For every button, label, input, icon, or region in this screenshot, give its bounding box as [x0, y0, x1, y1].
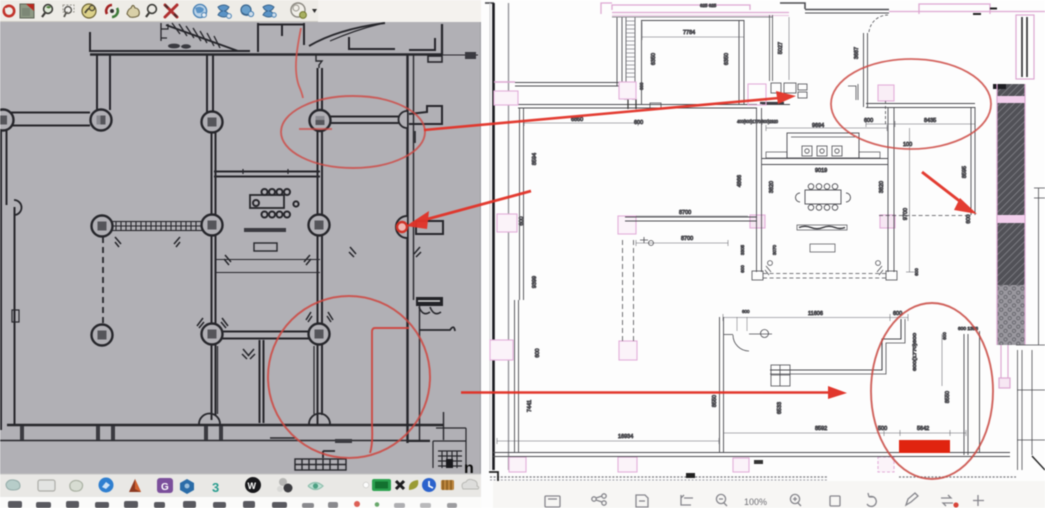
svg-text:8700: 8700 — [681, 236, 693, 242]
svg-text:8595: 8595 — [962, 166, 968, 178]
svg-text:600: 600 — [740, 265, 745, 273]
svg-text:8435: 8435 — [924, 118, 936, 124]
svg-text:600: 600 — [942, 332, 947, 340]
svg-text:3820: 3820 — [879, 181, 885, 193]
svg-text:5642: 5642 — [917, 426, 929, 432]
svg-text:625 625: 625 625 — [700, 3, 717, 8]
svg-text:9694: 9694 — [812, 123, 824, 129]
svg-text:9399: 9399 — [532, 276, 538, 288]
svg-text:11606: 11606 — [808, 311, 823, 317]
svg-text:3: 3 — [212, 480, 219, 495]
svg-text:8550: 8550 — [712, 395, 718, 407]
svg-text:6350: 6350 — [724, 53, 730, 65]
svg-text:4866: 4866 — [737, 175, 743, 187]
svg-text:8550: 8550 — [945, 391, 951, 403]
svg-text:100%: 100% — [744, 497, 767, 507]
svg-text:600: 600 — [535, 348, 541, 357]
svg-text:8700: 8700 — [679, 210, 691, 216]
svg-text:G: G — [161, 482, 169, 493]
svg-text:600: 600 — [742, 309, 750, 314]
svg-text:n: n — [464, 460, 474, 477]
svg-text:6533: 6533 — [777, 402, 783, 414]
svg-text:3305: 3305 — [740, 244, 745, 255]
svg-text:600: 600 — [864, 118, 873, 124]
svg-text:3820: 3820 — [769, 181, 775, 193]
svg-text:5027: 5027 — [778, 42, 784, 54]
svg-text:16934: 16934 — [618, 434, 633, 440]
svg-text:100: 100 — [903, 142, 912, 148]
svg-text:3687: 3687 — [854, 47, 860, 59]
svg-text:600: 600 — [966, 214, 972, 223]
svg-text:600: 600 — [519, 216, 525, 225]
svg-text:6850: 6850 — [571, 117, 583, 123]
svg-text:3070: 3070 — [772, 244, 777, 255]
svg-text:7441: 7441 — [527, 400, 533, 412]
svg-text:9700: 9700 — [903, 208, 909, 220]
svg-text:7784: 7784 — [683, 30, 695, 36]
svg-text:9019: 9019 — [815, 168, 827, 174]
svg-text:600: 600 — [639, 82, 644, 90]
svg-text:W: W — [248, 481, 257, 491]
svg-text:600: 600 — [634, 120, 643, 126]
svg-text:400(600)1770(600)2920: 400(600)1770(600)2920 — [737, 119, 778, 124]
svg-text:8592: 8592 — [815, 426, 827, 432]
svg-text:600: 600 — [914, 268, 919, 276]
svg-text:500: 500 — [878, 426, 887, 432]
svg-text:600(1770)600: 600(1770)600 — [912, 332, 917, 371]
svg-text:8594: 8594 — [532, 153, 538, 165]
svg-text:6350: 6350 — [651, 53, 657, 65]
